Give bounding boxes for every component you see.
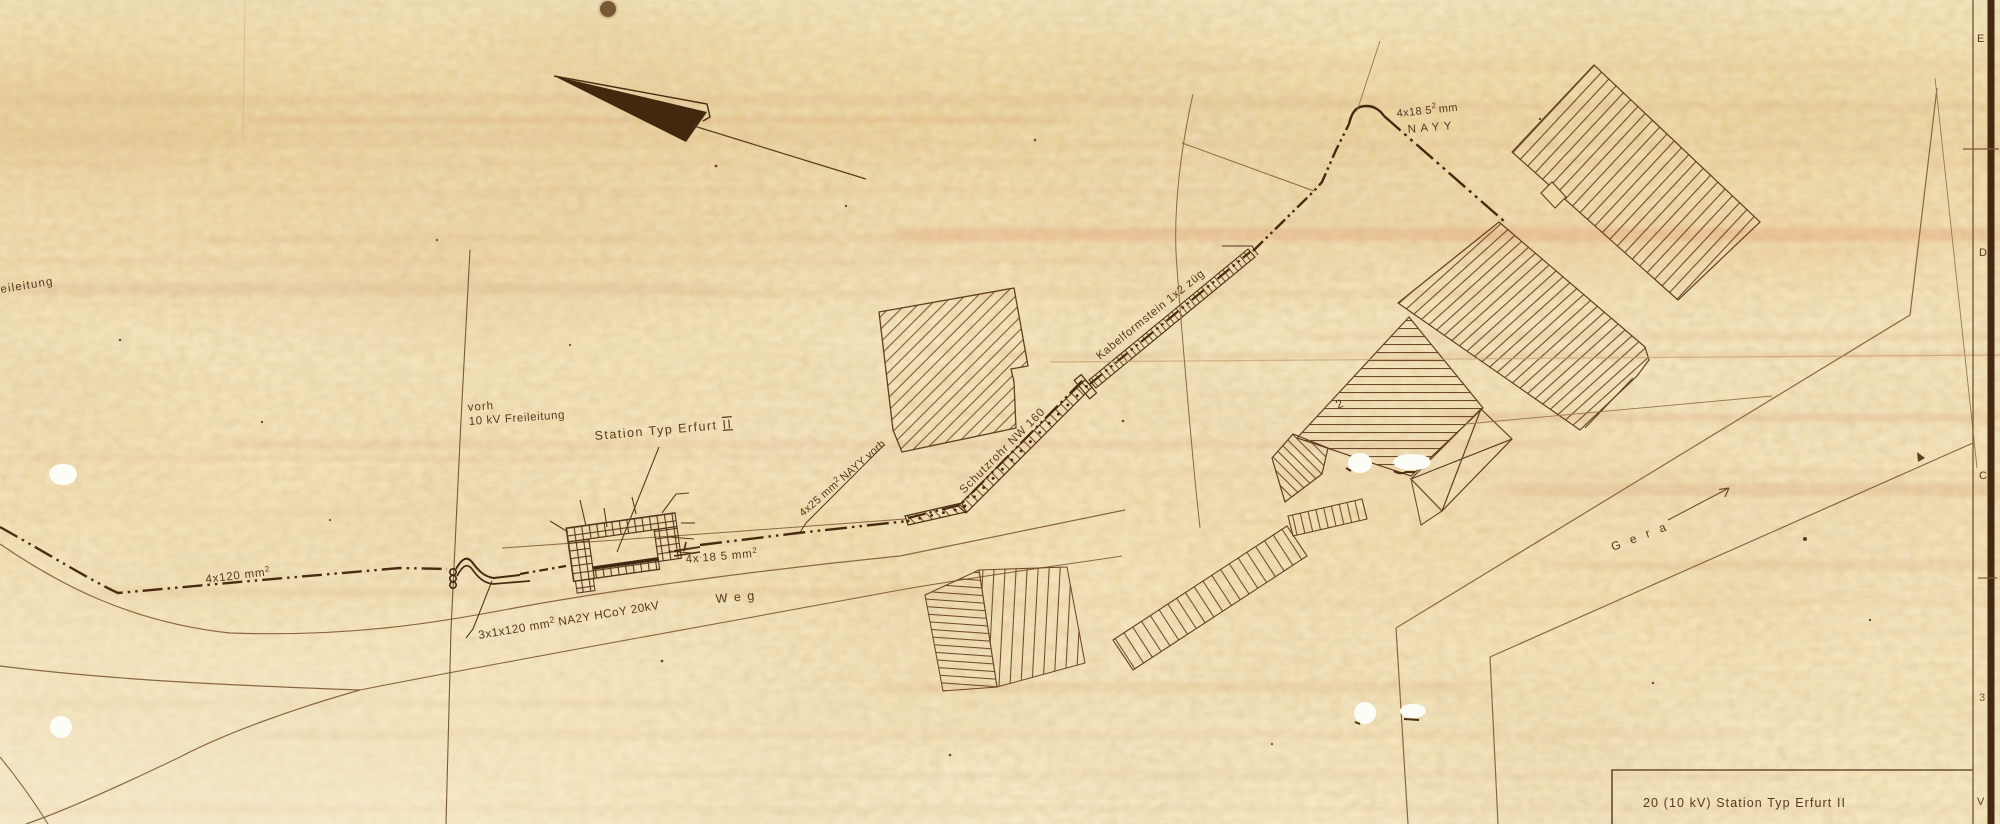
svg-text:E: E [1977, 33, 1984, 45]
svg-text:D: D [1979, 247, 1987, 259]
svg-text:20 (10 kV) Station Typ Erfurt: 20 (10 kV) Station Typ Erfurt II [1643, 796, 1846, 810]
svg-text:3: 3 [1979, 692, 1985, 704]
svg-text:C: C [1979, 470, 1987, 482]
svg-text:V: V [1977, 796, 1985, 808]
svg-text:vorh: vorh [467, 400, 494, 414]
